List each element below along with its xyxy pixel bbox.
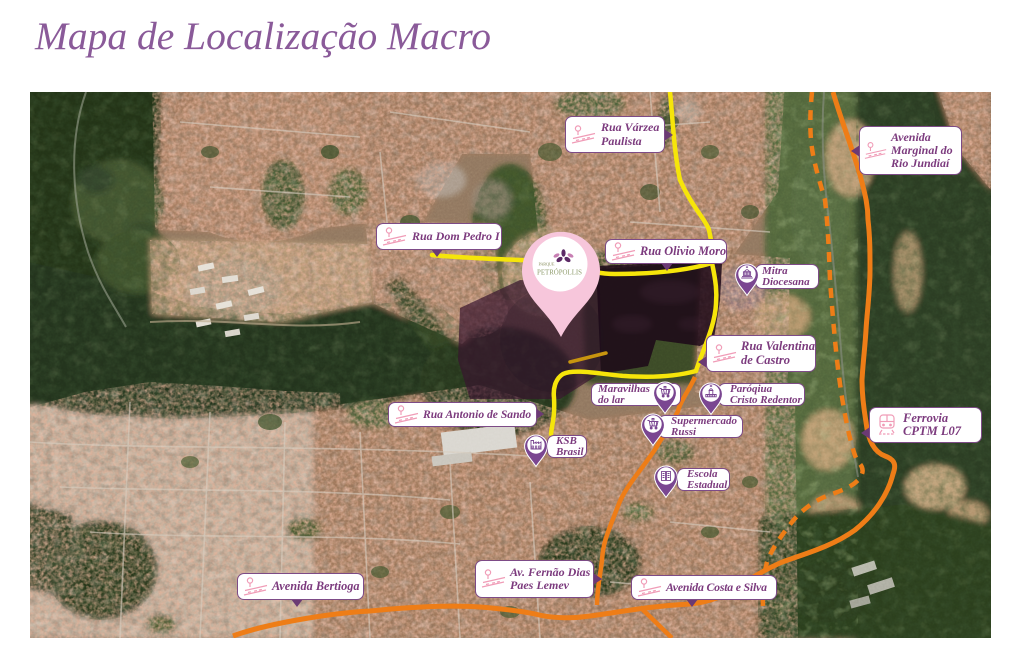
svg-text:PARQUE: PARQUE bbox=[539, 262, 555, 267]
svg-text:PETRÓPOLLIS: PETRÓPOLLIS bbox=[537, 267, 582, 277]
